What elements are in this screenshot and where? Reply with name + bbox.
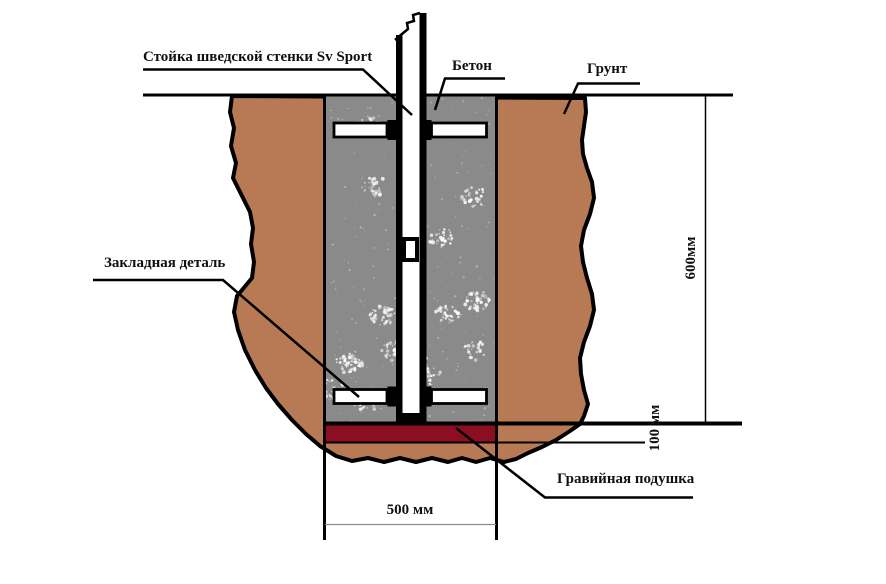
concrete-label: Бетон	[452, 58, 492, 74]
post-bottom-cap	[396, 413, 427, 424]
lower-left-plate	[334, 390, 387, 404]
upper-left-bracket	[388, 120, 397, 140]
post-left-edge	[396, 35, 403, 424]
depth-dimension-label: 600мм	[683, 233, 699, 283]
post-label: Стойка шведской стенки Sv Sport	[143, 49, 372, 65]
ground-label: Грунт	[587, 61, 627, 77]
post-body	[403, 13, 421, 415]
upper-right-plate	[432, 123, 487, 137]
gravel-thickness-label: 100 мм	[647, 401, 663, 455]
width-dimension-label: 500 мм	[383, 502, 437, 519]
embedded-part-label: Закладная деталь	[104, 255, 225, 271]
post-rung-slot	[404, 239, 417, 260]
upper-left-plate	[334, 123, 387, 137]
gravel-pad-label: Гравийная подушка	[557, 471, 694, 487]
post-right-edge	[420, 13, 427, 424]
lower-right-plate	[432, 390, 487, 404]
cross-section-drawing	[0, 0, 886, 584]
lower-left-bracket	[388, 387, 397, 407]
blueprint-canvas: Стойка шведской стенки Sv Sport Бетон Гр…	[0, 0, 886, 584]
post	[395, 13, 427, 424]
